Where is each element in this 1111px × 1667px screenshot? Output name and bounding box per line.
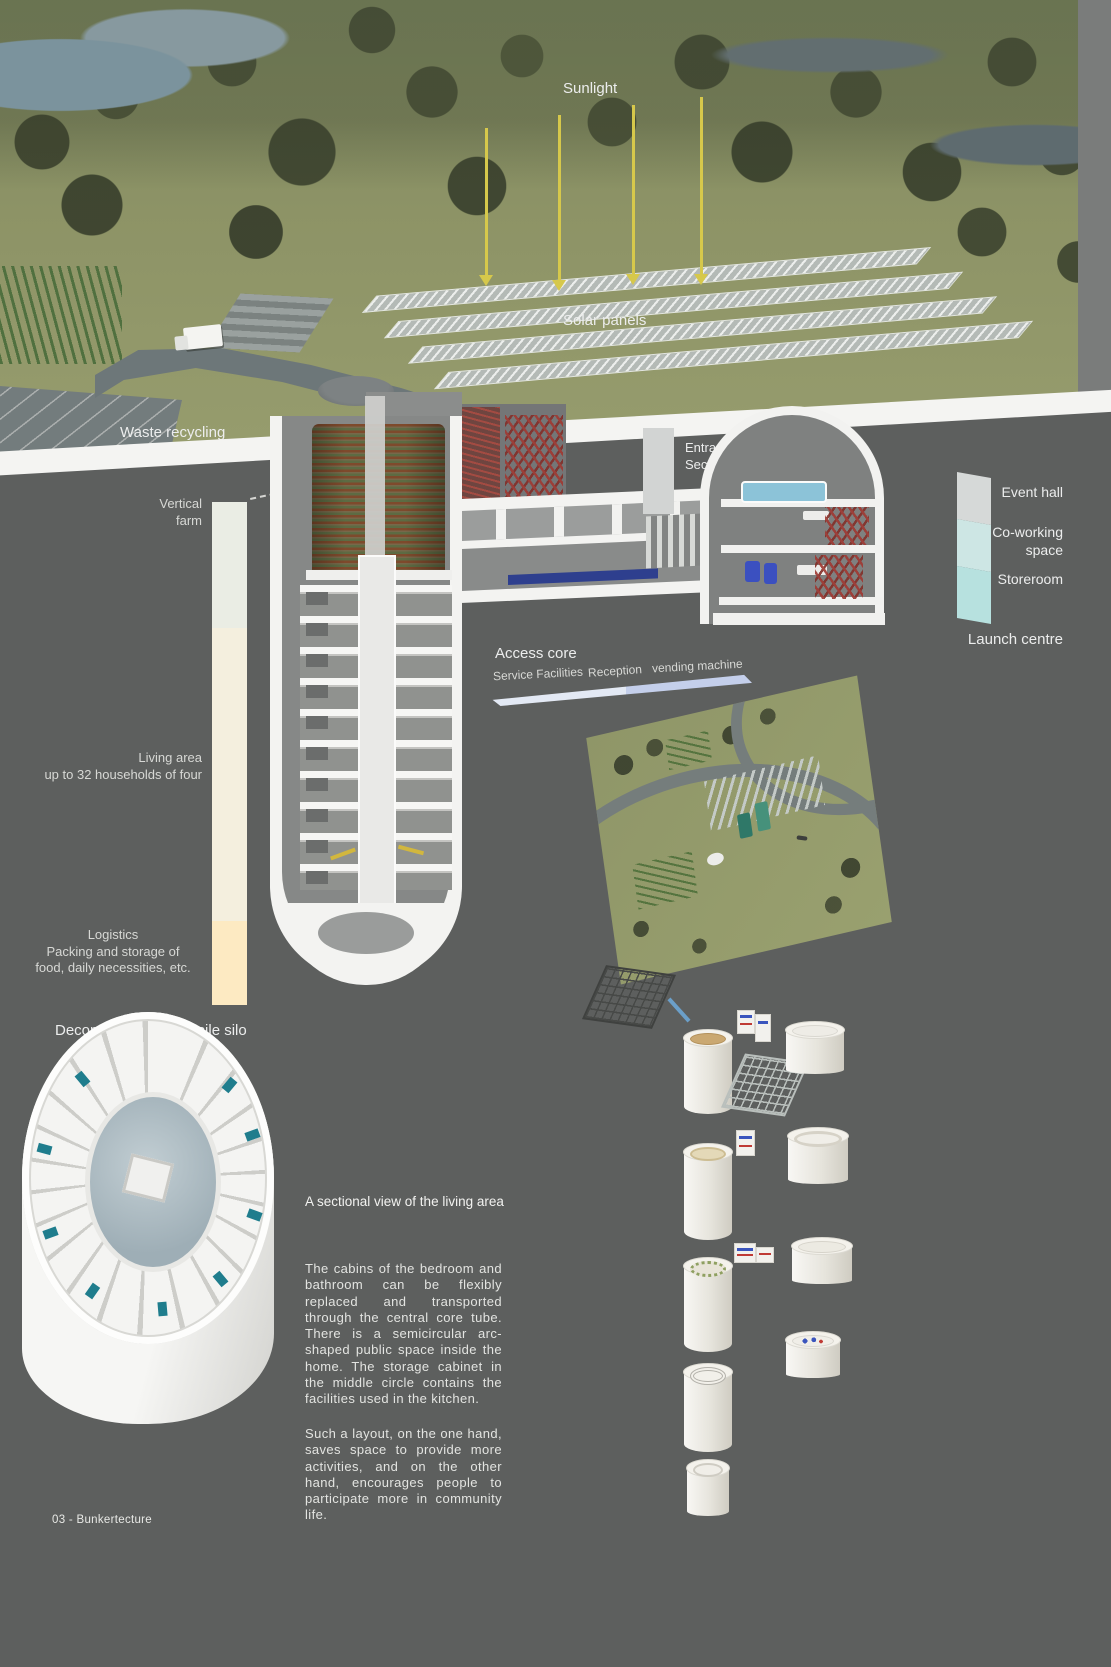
section-paragraph-1: The cabins of the bedroom and bathroom c…	[305, 1261, 502, 1408]
module-cylinder-2	[684, 1152, 732, 1240]
security-gates	[646, 514, 702, 569]
legend-vertical-farm-swatch	[212, 502, 247, 628]
vertical-farm-label: Vertical farm	[60, 496, 202, 529]
module-top-disc	[690, 1261, 726, 1277]
storage-barrel	[764, 563, 777, 584]
service-box	[755, 1014, 771, 1042]
aerial-site-map	[586, 675, 892, 984]
service-box	[737, 1010, 755, 1034]
service-box	[734, 1243, 756, 1263]
truck	[183, 324, 223, 350]
waste-recycling-pads	[207, 294, 334, 353]
service-facilities-label: Service Facilities	[493, 665, 584, 685]
living-area-label: Living area up to 32 households of four	[20, 750, 202, 783]
waste-recycling-label: Waste recycling	[120, 423, 225, 442]
module-top-disc	[690, 1033, 726, 1045]
section-heading: A sectional view of the living area	[305, 1194, 535, 1209]
crop-field	[0, 266, 122, 364]
module-top-disc	[794, 1131, 842, 1147]
module-cylinder-3	[684, 1266, 732, 1352]
storage-barrel	[745, 561, 760, 582]
legend-living-area-swatch	[212, 628, 247, 921]
dome-base	[713, 613, 885, 625]
connector-pipe	[667, 998, 690, 1023]
service-box	[736, 1130, 755, 1156]
core-tube-upper	[365, 396, 385, 558]
stairs-dome	[815, 555, 863, 599]
cabin-windows	[306, 592, 328, 884]
module-top-disc	[792, 1335, 834, 1347]
module-top-disc	[792, 1025, 838, 1037]
map-crop-field	[665, 730, 712, 770]
bunkertecture-poster: Sunlight Solar panels Waste recycling En…	[0, 0, 1111, 1667]
module-disc-blue	[786, 1340, 840, 1378]
pool	[741, 481, 827, 503]
module-top-disc	[693, 1463, 723, 1477]
coworking-label: Co-working space	[963, 524, 1063, 560]
exploded-solar-grid	[582, 965, 676, 1029]
truck-cab	[174, 335, 188, 350]
render-edge	[1078, 0, 1111, 398]
storeroom-label: Storeroom	[963, 571, 1063, 589]
module-cylinder-5	[687, 1468, 729, 1516]
page-footer: 03 - Bunkertecture	[52, 1514, 152, 1526]
module-top-disc	[690, 1147, 726, 1161]
bathroom-unit	[157, 1302, 167, 1317]
module-dome-1	[786, 1030, 844, 1074]
module-cylinder-4	[684, 1372, 732, 1452]
event-hall-label: Event hall	[963, 484, 1063, 502]
module-dome-2	[788, 1136, 848, 1184]
central-core	[358, 555, 396, 909]
sunlight-arrow-icon	[485, 128, 488, 276]
stairs-entrance	[505, 415, 563, 503]
service-box	[756, 1247, 774, 1263]
stairs-dome	[825, 507, 869, 545]
left-legend-bar	[212, 502, 247, 1005]
entrance-shaft	[643, 428, 674, 514]
entrance-wall-texture	[462, 407, 500, 504]
sunlight-label: Sunlight	[563, 79, 617, 98]
access-core-label: Access core	[495, 644, 577, 663]
module-top-disc	[690, 1367, 726, 1385]
legend-logistics-swatch	[212, 921, 247, 1005]
launch-centre-dome	[700, 406, 884, 624]
launch-centre-label: Launch centre	[913, 630, 1063, 649]
reception-label: Reception	[588, 662, 643, 681]
module-top-disc	[798, 1241, 846, 1253]
solar-panels-label: Solar panels	[563, 311, 646, 330]
silo-bottom-pit	[318, 912, 414, 954]
dome-floor	[721, 545, 881, 553]
sunlight-arrow-icon	[558, 115, 561, 281]
vending-machine-label: vending machine	[652, 657, 743, 677]
sunlight-arrow-icon	[700, 97, 703, 275]
sunlight-arrow-icon	[632, 105, 635, 275]
section-paragraph-2: Such a layout, on the one hand, saves sp…	[305, 1426, 502, 1524]
module-disc-3	[792, 1246, 852, 1284]
logistics-label: Logistics Packing and storage of food, d…	[15, 927, 211, 977]
